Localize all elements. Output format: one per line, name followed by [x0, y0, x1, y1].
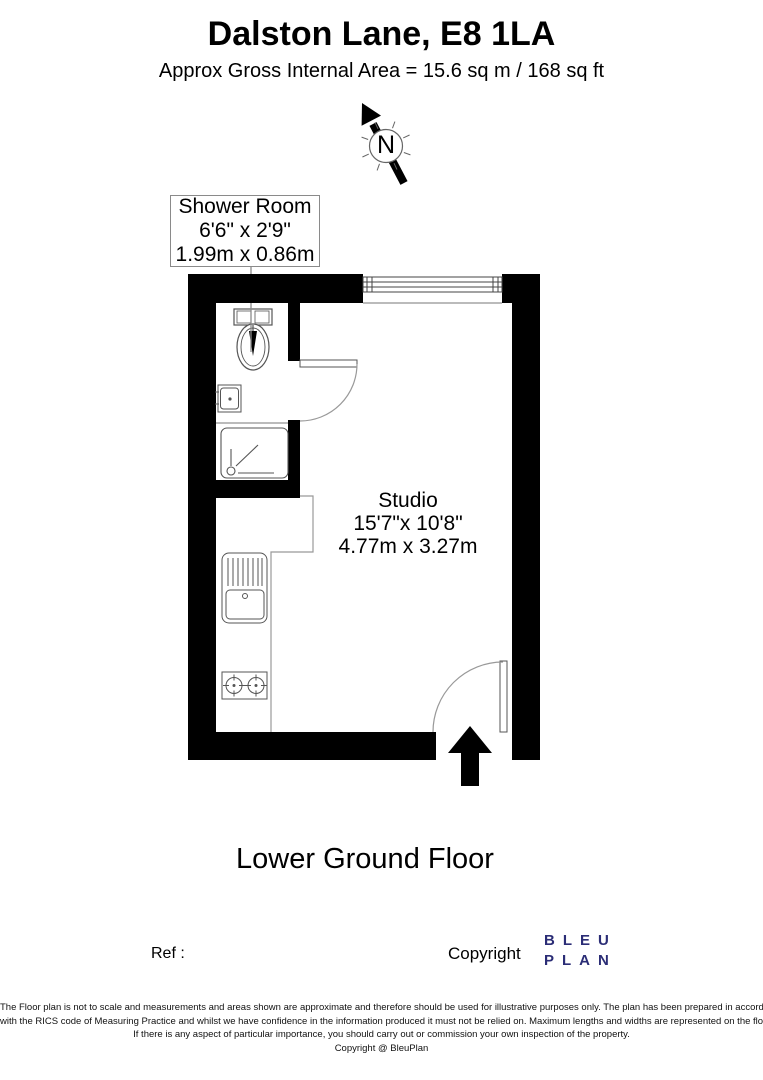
wall-bottom: [188, 732, 436, 760]
logo-line-1: BLEU: [544, 931, 617, 951]
shower-room-dims-imperial: 6'6" x 2'9": [171, 219, 319, 243]
entrance-door-arc: [433, 662, 503, 732]
toilet-icon: [234, 309, 272, 370]
studio-dims-imperial: 15'7"x 10'8": [283, 512, 533, 535]
wash-basin-icon: [215, 385, 241, 412]
window-icon: [363, 277, 502, 303]
entrance-door: [433, 661, 507, 732]
shower-door: [300, 360, 357, 421]
studio-label: Studio 15'7"x 10'8" 4.77m x 3.27m: [283, 489, 533, 558]
wall-partition-lower: [288, 420, 300, 482]
entrance-arrow-icon: [448, 726, 492, 786]
shower-room-name: Shower Room: [171, 195, 319, 219]
kitchen-sink-icon: [222, 553, 267, 623]
entrance-door-leaf: [500, 661, 507, 732]
disclaimer-line-3: If there is any aspect of particular imp…: [0, 1028, 763, 1042]
hob-icon: [222, 672, 267, 699]
ref-label: Ref :: [151, 945, 185, 963]
disclaimer-line-4: Copyright @ BleuPlan: [0, 1042, 763, 1056]
shower-door-arc: [300, 364, 357, 421]
disclaimer: The Floor plan is not to scale and measu…: [0, 1001, 763, 1055]
shower-door-leaf: [300, 360, 357, 367]
shower-room-label-box: Shower Room 6'6" x 2'9" 1.99m x 0.86m: [170, 195, 320, 267]
copyright-label: Copyright: [448, 944, 521, 964]
shower-room-dims-metric: 1.99m x 0.86m: [171, 243, 319, 267]
studio-name: Studio: [283, 489, 533, 512]
disclaimer-line-2: with the RICS code of Measuring Practice…: [0, 1015, 763, 1029]
logo-line-2: PLAN: [544, 951, 617, 971]
bleuplan-logo: BLEU PLAN: [544, 931, 617, 971]
floor-name: Lower Ground Floor: [0, 843, 730, 876]
wall-partition-upper: [288, 303, 300, 361]
shower-tray-icon: [221, 428, 288, 478]
disclaimer-line-1: The Floor plan is not to scale and measu…: [0, 1001, 763, 1015]
compass-north-label: N: [370, 131, 402, 160]
wall-left: [188, 274, 216, 760]
studio-dims-metric: 4.77m x 3.27m: [283, 535, 533, 558]
floorplan-page: Dalston Lane, E8 1LA Approx Gross Intern…: [0, 0, 763, 1080]
